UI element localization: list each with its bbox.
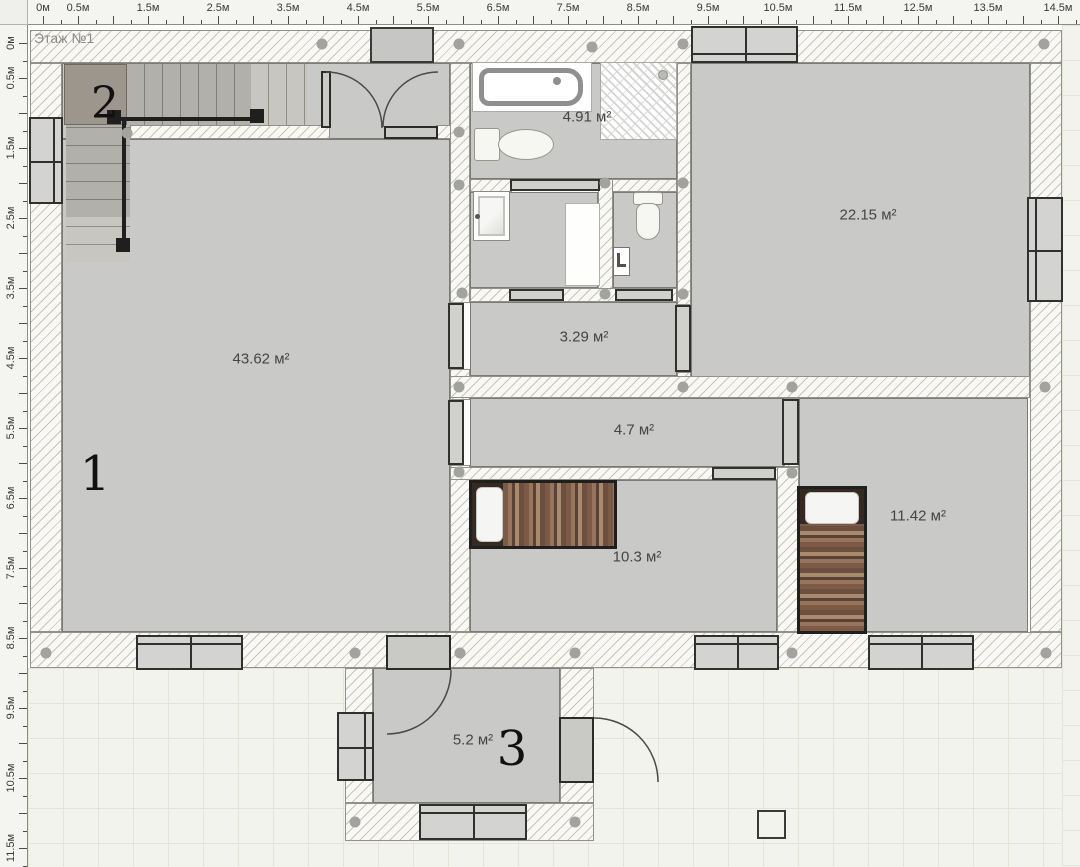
- bathtub-basin: [479, 68, 583, 106]
- door-leaf-stairhall[interactable]: [321, 71, 331, 128]
- ruler-label: 0м: [36, 2, 50, 14]
- ruler-label: 11.5м: [5, 834, 17, 862]
- room-area-bedroom-large: 22.15 м²: [839, 207, 896, 224]
- ruler-tick: [726, 20, 727, 24]
- ruler-label: 6.5м: [5, 487, 17, 510]
- ruler-tick: [19, 393, 27, 394]
- ruler-tick: [586, 20, 587, 24]
- ruler-tick: [988, 16, 989, 24]
- ruler-tick: [23, 61, 27, 62]
- bed-pillow: [476, 487, 503, 542]
- ruler-tick: [533, 16, 534, 24]
- bathtub-drain: [553, 77, 561, 85]
- ruler-tick: [831, 20, 832, 24]
- ruler-label: 0.5м: [67, 2, 90, 14]
- ruler-label: 2.5м: [207, 2, 230, 14]
- ruler-tick: [131, 20, 132, 24]
- ruler-tick: [1058, 16, 1059, 24]
- ruler-tick: [23, 621, 27, 622]
- room-area-corridor-upper: 3.29 м²: [560, 329, 609, 346]
- wall-anchor-dot[interactable]: [1040, 382, 1051, 393]
- tall-cabinet[interactable]: [565, 203, 600, 286]
- ruler-tick: [19, 603, 27, 604]
- ruler-tick: [708, 16, 709, 24]
- ruler-tick: [376, 20, 377, 24]
- opening-corridor-bedroom-right[interactable]: [782, 399, 799, 465]
- room-area-bedroom-left: 10.3 м²: [613, 549, 662, 566]
- ruler-tick: [358, 16, 359, 24]
- ruler-vertical: 0м0.5м1.5м2.5м3.5м4.5м5.5м6.5м7.5м8.5м9.…: [0, 25, 28, 867]
- ruler-tick: [638, 16, 639, 24]
- ruler-tick: [19, 253, 27, 254]
- ruler-tick: [761, 20, 762, 24]
- ruler-label: 10.5м: [764, 2, 793, 14]
- ruler-tick: [936, 20, 937, 24]
- wall-stairhall-living[interactable]: [130, 125, 330, 139]
- wall-anchor-dot[interactable]: [350, 817, 361, 828]
- ruler-label: 0.5м: [5, 67, 17, 90]
- ruler-tick: [481, 20, 482, 24]
- room-area-bathroom: 4.91 м²: [563, 109, 612, 126]
- opening-living-corridor-upper[interactable]: [448, 303, 464, 369]
- wall-anchor-dot[interactable]: [454, 127, 465, 138]
- ruler-tick: [866, 20, 867, 24]
- wall-anchor-dot[interactable]: [454, 382, 465, 393]
- ruler-tick: [19, 78, 27, 79]
- ruler-tick: [236, 20, 237, 24]
- wall-anchor-dot[interactable]: [454, 180, 465, 191]
- wall-anchor-dot[interactable]: [600, 178, 611, 189]
- ruler-tick: [19, 638, 27, 639]
- stair-railing-post-right: [250, 109, 264, 123]
- bed-blanket: [503, 483, 614, 546]
- wall-anchor-dot[interactable]: [787, 468, 798, 479]
- corner-sink[interactable]: [613, 247, 630, 276]
- ruler-tick: [743, 16, 744, 24]
- ruler-tick: [23, 691, 27, 692]
- ruler-tick: [656, 20, 657, 24]
- bed-blanket: [800, 524, 864, 631]
- ruler-tick: [43, 16, 44, 24]
- toilet-wc[interactable]: [633, 192, 664, 241]
- ruler-label: 9.5м: [5, 697, 17, 720]
- ruler-tick: [19, 288, 27, 289]
- ruler-horizontal: 0м0.5м1.5м2.5м3.5м4.5м5.5м6.5м7.5м8.5м9.…: [28, 0, 1080, 25]
- wall-anchor-dot[interactable]: [570, 648, 581, 659]
- opening-corridor-bedroom-large[interactable]: [675, 305, 691, 372]
- window-left-wall[interactable]: [29, 117, 63, 204]
- ruler-tick: [19, 183, 27, 184]
- ruler-tick: [23, 831, 27, 832]
- room-area-vestibule: 5.2 м²: [453, 732, 493, 749]
- ruler-tick: [201, 20, 202, 24]
- ruler-tick: [883, 16, 884, 24]
- ruler-tick: [19, 43, 27, 44]
- wall-anchor-dot[interactable]: [317, 39, 328, 50]
- ground-tiles-right: [1062, 25, 1080, 867]
- bed-left[interactable]: [469, 480, 617, 549]
- ruler-label: 4.5м: [5, 347, 17, 370]
- window-bottom-living[interactable]: [136, 635, 243, 670]
- ruler-tick: [23, 131, 27, 132]
- ruler-tick: [23, 551, 27, 552]
- ruler-tick: [23, 796, 27, 797]
- ruler-tick: [23, 411, 27, 412]
- washbasin-cabinet[interactable]: [473, 191, 510, 241]
- ruler-label: 4.5м: [347, 2, 370, 14]
- ruler-tick: [19, 778, 27, 779]
- ruler-tick: [1076, 20, 1077, 24]
- wall-bedrooms-divider[interactable]: [777, 467, 799, 632]
- wall-shower-wc[interactable]: [598, 179, 613, 302]
- wall-anchor-dot[interactable]: [122, 128, 133, 139]
- door-bathroom-shower[interactable]: [510, 179, 600, 191]
- window-vestibule-bottom[interactable]: [419, 804, 527, 840]
- ruler-tick: [113, 16, 114, 24]
- ruler-tick: [23, 341, 27, 342]
- ruler-tick: [288, 16, 289, 24]
- wall-anchor-dot[interactable]: [1039, 39, 1050, 50]
- door-leaf-vestibule-exit[interactable]: [559, 717, 594, 783]
- ruler-tick: [516, 20, 517, 24]
- ruler-tick: [19, 113, 27, 114]
- ruler-tick: [1006, 20, 1007, 24]
- ruler-tick: [166, 20, 167, 24]
- ruler-tick: [23, 306, 27, 307]
- door-leaf-entrance[interactable]: [386, 635, 451, 670]
- ruler-tick: [691, 20, 692, 24]
- shower-head: [658, 70, 668, 80]
- bed-right[interactable]: [797, 486, 867, 634]
- ruler-tick: [19, 848, 27, 849]
- ruler-tick: [498, 16, 499, 24]
- wall-living-bedroom-left[interactable]: [450, 465, 470, 632]
- ruler-tick: [1023, 16, 1024, 24]
- ruler-tick: [1041, 20, 1042, 24]
- stair-railing-horizontal: [113, 117, 263, 121]
- ruler-label: 13.5м: [974, 2, 1003, 14]
- yard-square[interactable]: [757, 810, 786, 839]
- wall-anchor-dot[interactable]: [678, 289, 689, 300]
- ruler-tick: [96, 20, 97, 24]
- ruler-tick: [23, 586, 27, 587]
- ruler-tick: [23, 656, 27, 657]
- ruler-tick: [19, 743, 27, 744]
- ruler-tick: [813, 16, 814, 24]
- window-right-wall[interactable]: [1027, 197, 1063, 302]
- ruler-label: 11.5м: [834, 2, 862, 14]
- door-wc-corridor[interactable]: [615, 289, 673, 301]
- floor-label: Этаж №1: [34, 30, 94, 46]
- ruler-tick: [19, 358, 27, 359]
- room-number-stairhall: 2: [91, 82, 119, 126]
- ruler-label: 14.5м: [1044, 2, 1073, 14]
- ruler-label: 1.5м: [5, 137, 17, 160]
- ruler-tick: [953, 16, 954, 24]
- ruler-tick: [19, 673, 27, 674]
- ruler-tick: [253, 16, 254, 24]
- ruler-tick: [568, 16, 569, 24]
- ruler-label: 9.5м: [697, 2, 720, 14]
- ruler-label: 7.5м: [557, 2, 580, 14]
- wall-anchor-dot[interactable]: [678, 39, 689, 50]
- bed-pillow: [805, 492, 859, 524]
- ruler-tick: [148, 16, 149, 24]
- wall-anchor-dot[interactable]: [787, 382, 798, 393]
- ruler-tick: [19, 323, 27, 324]
- ruler-tick: [446, 20, 447, 24]
- faucet-dot: [475, 214, 480, 219]
- ruler-tick: [23, 866, 27, 867]
- ruler-label: 5.5м: [5, 417, 17, 440]
- ruler-tick: [23, 236, 27, 237]
- ruler-label: 6.5м: [487, 2, 510, 14]
- ruler-tick: [463, 16, 464, 24]
- ruler-tick: [603, 16, 604, 24]
- ruler-label: 0м: [5, 36, 17, 50]
- ruler-tick: [23, 516, 27, 517]
- ruler-tick: [19, 533, 27, 534]
- wall-anchor-dot[interactable]: [678, 178, 689, 189]
- toilet-tank: [474, 128, 500, 161]
- ruler-tick: [848, 16, 849, 24]
- room-number-vestibule: 3: [497, 725, 528, 773]
- ruler-tick: [19, 428, 27, 429]
- ruler-tick: [918, 16, 919, 24]
- ruler-tick: [411, 20, 412, 24]
- wall-mid-horizontal[interactable]: [450, 376, 1030, 398]
- ruler-tick: [23, 481, 27, 482]
- ruler-tick: [19, 498, 27, 499]
- ruler-tick: [23, 201, 27, 202]
- ruler-tick: [621, 20, 622, 24]
- ruler-label: 5.5м: [417, 2, 440, 14]
- ruler-tick: [23, 166, 27, 167]
- ruler-label: 8.5м: [627, 2, 650, 14]
- ruler-tick: [78, 16, 79, 24]
- window-bottom-bedroom-left[interactable]: [694, 635, 779, 670]
- ruler-tick: [23, 376, 27, 377]
- door-shower-corridor[interactable]: [509, 289, 564, 301]
- ruler-tick: [323, 16, 324, 24]
- ruler-tick: [271, 20, 272, 24]
- wall-anchor-dot[interactable]: [457, 288, 468, 299]
- room-area-corridor-lower: 4.7 м²: [614, 422, 654, 439]
- ruler-label: 7.5м: [5, 557, 17, 580]
- wall-anchor-dot[interactable]: [454, 39, 465, 50]
- ruler-tick: [551, 20, 552, 24]
- corner-sink-bowl: [617, 253, 626, 267]
- ruler-tick: [341, 20, 342, 24]
- stair-flight-upper[interactable]: [127, 64, 251, 125]
- window-top-bedroom-large[interactable]: [691, 26, 798, 63]
- ruler-tick: [23, 726, 27, 727]
- ruler-tick: [61, 20, 62, 24]
- ruler-tick: [183, 16, 184, 24]
- ruler-corner: [0, 0, 28, 25]
- wall-anchor-dot[interactable]: [570, 817, 581, 828]
- ruler-label: 2.5м: [5, 207, 17, 230]
- ruler-tick: [23, 761, 27, 762]
- wall-anchor-dot[interactable]: [455, 648, 466, 659]
- stair-railing-vertical: [122, 121, 126, 243]
- ruler-tick: [901, 20, 902, 24]
- wall-anchor-dot[interactable]: [1041, 648, 1052, 659]
- ruler-tick: [19, 708, 27, 709]
- ruler-tick: [393, 16, 394, 24]
- ruler-tick: [971, 20, 972, 24]
- stair-flight-lower[interactable]: [66, 125, 130, 217]
- door-corridor-bedroom-left[interactable]: [712, 467, 776, 480]
- toilet-bowl: [636, 203, 660, 240]
- room-number-living: 1: [80, 450, 111, 498]
- wall-anchor-dot[interactable]: [678, 382, 689, 393]
- ruler-tick: [19, 813, 27, 814]
- ruler-label: 3.5м: [277, 2, 300, 14]
- ruler-label: 10.5м: [5, 764, 17, 793]
- entrance-step-top[interactable]: [370, 27, 434, 63]
- toilet-bowl: [498, 129, 554, 160]
- toilet-bathroom[interactable]: [474, 128, 556, 162]
- wall-anchor-dot[interactable]: [41, 648, 52, 659]
- ruler-tick: [23, 96, 27, 97]
- ruler-tick: [218, 16, 219, 24]
- door-leaf-minihall[interactable]: [384, 126, 438, 139]
- ruler-tick: [23, 446, 27, 447]
- window-bottom-bedroom-right[interactable]: [868, 635, 974, 670]
- wall-exterior-right[interactable]: [1030, 63, 1062, 632]
- ruler-tick: [19, 148, 27, 149]
- ruler-tick: [796, 20, 797, 24]
- ruler-tick: [778, 16, 779, 24]
- washbasin-bowl: [478, 196, 505, 236]
- ruler-tick: [428, 16, 429, 24]
- wall-anchor-dot[interactable]: [454, 467, 465, 478]
- wall-anchor-dot[interactable]: [787, 648, 798, 659]
- ruler-tick: [23, 271, 27, 272]
- room-area-living: 43.62 м²: [232, 351, 289, 368]
- ruler-tick: [19, 463, 27, 464]
- opening-living-corridor-lower[interactable]: [448, 400, 464, 465]
- window-vestibule-left[interactable]: [337, 712, 374, 781]
- floorplan-canvas[interactable]: Этаж №1 43.62 м² 4.91 м² 22.15 м² 3.29 м…: [0, 0, 1080, 867]
- wall-anchor-dot[interactable]: [350, 648, 361, 659]
- wall-exterior-top[interactable]: [30, 30, 1062, 63]
- ruler-tick: [306, 20, 307, 24]
- ruler-tick: [19, 568, 27, 569]
- room-area-bedroom-right: 11.42 м²: [890, 508, 946, 525]
- wall-anchor-dot[interactable]: [587, 42, 598, 53]
- ruler-label: 12.5м: [904, 2, 933, 14]
- shower-cabin[interactable]: [600, 62, 677, 140]
- ruler-label: 8.5м: [5, 627, 17, 650]
- ruler-label: 3.5м: [5, 277, 17, 300]
- ruler-label: 1.5м: [137, 2, 160, 14]
- wall-anchor-dot[interactable]: [600, 289, 611, 300]
- ruler-tick: [19, 218, 27, 219]
- stair-railing-post-bottom: [116, 238, 130, 252]
- bathtub[interactable]: [472, 62, 592, 112]
- ruler-tick: [673, 16, 674, 24]
